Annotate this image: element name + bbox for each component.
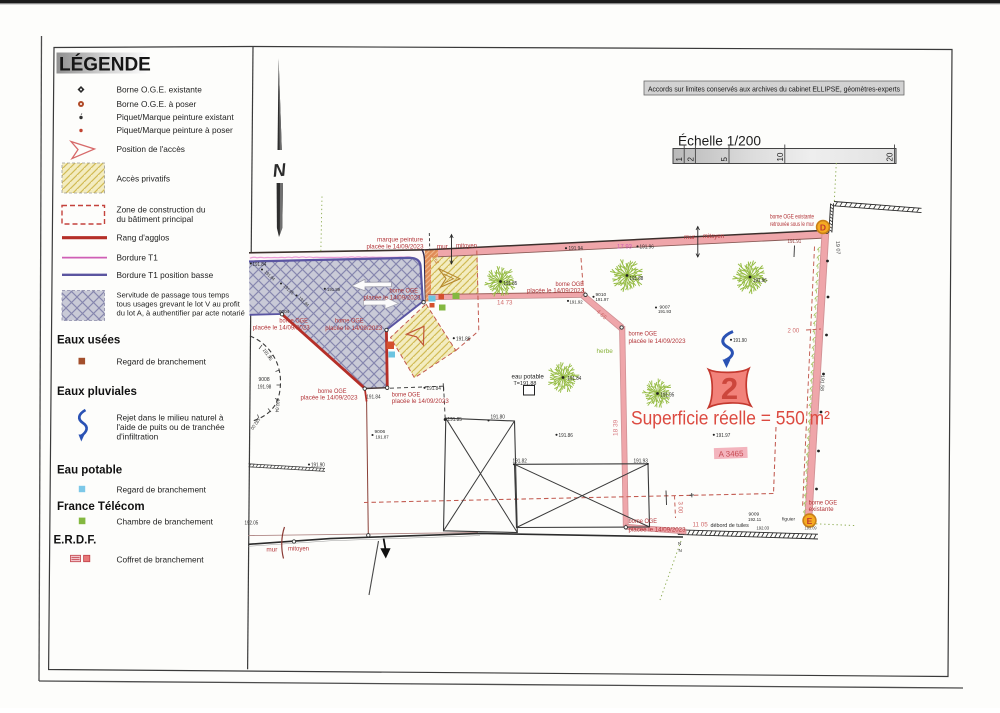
svg-text:9006: 9006 <box>375 429 386 435</box>
svg-text:Bordure T1 position basse: Bordure T1 position basse <box>117 270 214 280</box>
svg-text:191.97: 191.97 <box>596 297 609 303</box>
svg-text:Borne O.G.E. existante: Borne O.G.E. existante <box>117 85 203 95</box>
svg-text:Regard de branchement: Regard de branchement <box>117 484 207 494</box>
svg-text:du lot A, à authentifier par a: du lot A, à authentifier par acte notari… <box>117 308 245 317</box>
svg-text:N: N <box>678 541 681 546</box>
svg-text:11 05: 11 05 <box>693 521 709 528</box>
svg-text:placée le 14/09/2023: placée le 14/09/2023 <box>367 244 425 251</box>
svg-text:191.58: 191.58 <box>818 375 825 391</box>
svg-text:Bordure T1: Bordure T1 <box>117 252 159 262</box>
svg-text:193.09: 193.09 <box>805 525 818 530</box>
svg-text:placée le 14/09/2023: placée le 14/09/2023 <box>253 325 311 332</box>
svg-text:Eaux usées: Eaux usées <box>57 335 120 347</box>
svg-text:9008: 9008 <box>259 377 270 383</box>
svg-text:T=191.88: T=191.88 <box>514 381 537 387</box>
svg-text:191.90: 191.90 <box>311 463 325 469</box>
svg-text:192.03: 192.03 <box>757 525 770 530</box>
svg-text:191.93: 191.93 <box>634 459 648 465</box>
svg-text:192.11: 192.11 <box>748 517 761 523</box>
svg-text:Accès privatifs: Accès privatifs <box>117 174 170 184</box>
svg-text:Piquet/Marque peinture à poser: Piquet/Marque peinture à poser <box>117 125 233 135</box>
svg-text:191.98: 191.98 <box>258 384 272 390</box>
svg-text:Eau potable: Eau potable <box>57 464 122 476</box>
svg-text:3 00: 3 00 <box>677 502 683 514</box>
svg-text:mitoyen: mitoyen <box>703 233 725 240</box>
svg-text:A 3465: A 3465 <box>718 449 744 459</box>
svg-text:191.85: 191.85 <box>504 281 518 287</box>
svg-text:Zone de construction du: Zone de construction du <box>117 205 206 215</box>
svg-text:18 39: 18 39 <box>613 419 620 436</box>
svg-text:2 00: 2 00 <box>788 329 800 335</box>
svg-text:191.97: 191.97 <box>716 433 730 439</box>
svg-text:191.96: 191.96 <box>640 244 654 250</box>
svg-text:14 73: 14 73 <box>497 300 513 307</box>
svg-text:19 07: 19 07 <box>834 241 841 255</box>
svg-text:Rang d'agglos: Rang d'agglos <box>117 233 170 243</box>
svg-text:N: N <box>679 548 682 553</box>
svg-text:10: 10 <box>776 152 785 161</box>
svg-text:20: 20 <box>886 152 895 161</box>
svg-text:du bâtiment principal: du bâtiment principal <box>117 214 194 224</box>
svg-text:D: D <box>820 222 826 232</box>
svg-text:borne OGE: borne OGE <box>629 331 658 338</box>
svg-text:borne OGE: borne OGE <box>390 287 419 294</box>
svg-text:191.87: 191.87 <box>376 434 389 440</box>
svg-text:17 93: 17 93 <box>617 245 633 251</box>
svg-text:borne OGE: borne OGE <box>279 318 308 325</box>
svg-text:existante: existante <box>809 506 835 513</box>
svg-text:Eaux pluviales: Eaux pluviales <box>57 386 137 398</box>
svg-text:Regard de branchement: Regard de branchement <box>117 356 207 366</box>
svg-text:9004: 9004 <box>279 309 290 314</box>
svg-text:191.88: 191.88 <box>630 276 644 282</box>
svg-text:LÉGENDE: LÉGENDE <box>59 54 151 76</box>
svg-text:Accords sur limites conservés: Accords sur limites conservés aux archiv… <box>648 84 900 93</box>
svg-text:mitoyen: mitoyen <box>288 546 310 553</box>
svg-text:192.04: 192.04 <box>273 399 280 413</box>
svg-text:Servitude de passage tous temp: Servitude de passage tous temps <box>117 290 230 299</box>
svg-text:mur: mur <box>437 243 448 250</box>
svg-text:débord de tuiles: débord de tuiles <box>711 523 750 529</box>
svg-text:191.84: 191.84 <box>568 376 582 382</box>
svg-text:Superficie réelle = 550 m²: Superficie réelle = 550 m² <box>631 408 830 430</box>
svg-text:1: 1 <box>675 157 684 162</box>
svg-text:191.80: 191.80 <box>491 415 505 421</box>
svg-text:191.91: 191.91 <box>788 239 802 245</box>
svg-text:192.05: 192.05 <box>245 521 259 527</box>
svg-text:Piquet/Marque peinture existan: Piquet/Marque peinture existant <box>117 112 235 122</box>
svg-text:figuier: figuier <box>782 517 795 523</box>
svg-text:mur: mur <box>266 547 277 554</box>
svg-text:placée le 14/09/2023: placée le 14/09/2023 <box>629 338 687 345</box>
svg-text:Chambre de branchement: Chambre de branchement <box>117 516 214 526</box>
svg-text:E.R.D.F.: E.R.D.F. <box>54 534 97 546</box>
svg-text:Rejet dans le milieu naturel à: Rejet dans le milieu naturel à <box>117 412 224 422</box>
svg-text:191.85: 191.85 <box>448 417 462 423</box>
svg-text:Coffret de branchement: Coffret de branchement <box>117 554 205 564</box>
svg-text:191.86: 191.86 <box>456 337 470 343</box>
svg-text:placée le 14/09/2023: placée le 14/09/2023 <box>364 295 421 302</box>
svg-text:191.84: 191.84 <box>427 386 441 392</box>
svg-text:borne OGE: borne OGE <box>335 317 364 324</box>
svg-text:l'aide de puits ou de tranchée: l'aide de puits ou de tranchée <box>117 422 226 432</box>
svg-text:191.95: 191.95 <box>661 393 675 399</box>
svg-text:marque peinture: marque peinture <box>377 236 424 243</box>
svg-text:retrouvée sous le mur: retrouvée sous le mur <box>770 221 814 228</box>
svg-text:191.84: 191.84 <box>253 262 267 268</box>
svg-text:placée le 14/09/2023: placée le 14/09/2023 <box>527 288 585 295</box>
svg-text:mur: mur <box>684 234 695 241</box>
svg-text:191.84: 191.84 <box>366 395 380 401</box>
svg-text:191.93: 191.93 <box>658 309 671 315</box>
svg-text:Borne O.G.E. à poser: Borne O.G.E. à poser <box>117 99 197 109</box>
svg-text:2: 2 <box>721 371 738 406</box>
svg-text:Échelle 1/200: Échelle 1/200 <box>678 133 761 149</box>
svg-text:191.89: 191.89 <box>327 287 340 293</box>
svg-text:mitoyen: mitoyen <box>456 242 478 249</box>
svg-text:Position de l'accès: Position de l'accès <box>117 144 185 154</box>
svg-text:191.86: 191.86 <box>559 433 573 439</box>
svg-text:191.90: 191.90 <box>733 338 747 344</box>
svg-text:E: E <box>807 516 813 526</box>
svg-text:191.96: 191.96 <box>753 278 767 284</box>
svg-text:2: 2 <box>686 157 695 162</box>
svg-text:placée le 14/09/2023: placée le 14/09/2023 <box>325 325 383 332</box>
svg-text:placée le 14/09/2023: placée le 14/09/2023 <box>629 526 687 533</box>
svg-text:herbe: herbe <box>597 348 614 355</box>
svg-text:borne OGE existante: borne OGE existante <box>770 214 814 221</box>
svg-text:placée le 14/09/2023: placée le 14/09/2023 <box>392 398 450 405</box>
svg-text:191.82: 191.82 <box>513 459 527 465</box>
svg-text:9009: 9009 <box>749 512 760 518</box>
svg-text:eau potable: eau potable <box>512 373 545 380</box>
svg-text:5: 5 <box>720 157 729 162</box>
svg-text:France Télécom: France Télécom <box>57 501 145 513</box>
svg-text:tous usages grevant le lot V a: tous usages grevant le lot V au profit <box>117 299 241 308</box>
svg-text:191.94: 191.94 <box>569 246 583 252</box>
svg-text:borne OGE: borne OGE <box>629 518 658 525</box>
svg-text:d'infiltration: d'infiltration <box>117 431 159 441</box>
svg-text:191.92: 191.92 <box>570 300 583 306</box>
svg-text:placée le 14/09/2023: placée le 14/09/2023 <box>301 395 359 402</box>
